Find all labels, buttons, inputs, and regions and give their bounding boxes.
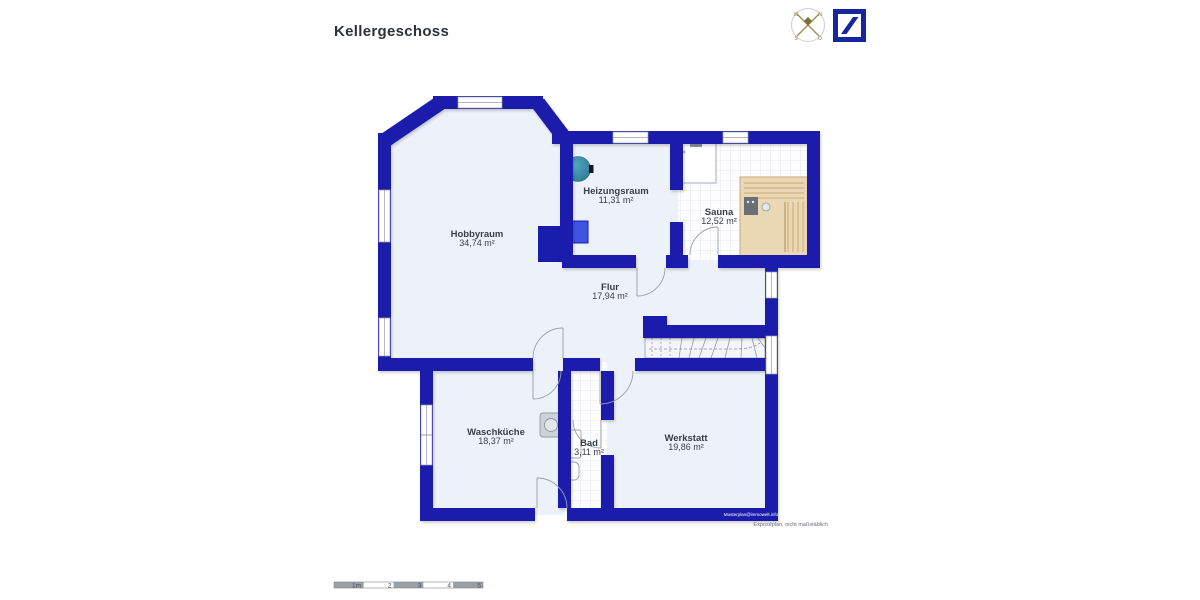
sauna-cabin bbox=[740, 177, 808, 256]
plan-watermark: Musterplan@immowelt.info bbox=[724, 512, 779, 517]
scale-label-3: 3 bbox=[418, 583, 422, 590]
room-area-sauna: 12,52 m² bbox=[701, 216, 737, 226]
room-area-bad: 3,11 m² bbox=[574, 447, 604, 457]
sauna-heater bbox=[744, 197, 758, 215]
scale-disclaimer: Exposéplan, nicht maßstäblich bbox=[753, 522, 828, 528]
stairs bbox=[645, 338, 765, 358]
scale-label-5: 5 bbox=[477, 583, 481, 590]
scale-label-2: 2 bbox=[388, 583, 392, 590]
room-area-heizungsraum: 11,31 m² bbox=[599, 195, 634, 205]
compass-north: N bbox=[818, 12, 822, 18]
brand-logo bbox=[833, 9, 866, 42]
window bbox=[766, 336, 777, 374]
window bbox=[723, 132, 748, 143]
window bbox=[421, 405, 432, 465]
room-area-hobbyraum: 34,74 m² bbox=[459, 238, 495, 248]
tank-valve bbox=[589, 165, 594, 173]
scale-bar: 1m 2 3 4 5 bbox=[334, 582, 483, 590]
compass-east: O bbox=[818, 36, 822, 42]
room-area-flur: 17,94 m² bbox=[592, 291, 628, 301]
compass-west: W bbox=[794, 12, 799, 18]
window bbox=[766, 272, 777, 298]
window bbox=[613, 132, 648, 143]
scale-label-4: 4 bbox=[447, 583, 451, 590]
floorplan-page: Kellergeschoss bbox=[0, 0, 1200, 600]
window bbox=[379, 318, 390, 356]
compass-icon: W N S O bbox=[792, 9, 825, 43]
floorplan-drawing: Hobbyraum 34,74 m² Heizungsraum 11,31 m²… bbox=[0, 0, 1200, 600]
window bbox=[379, 190, 390, 242]
window bbox=[458, 97, 502, 108]
room-area-werkstatt: 19,86 m² bbox=[668, 442, 704, 452]
room-area-waschkueche: 18,37 m² bbox=[478, 436, 514, 446]
scale-label-1m: 1m bbox=[352, 583, 361, 590]
sauna-light bbox=[762, 203, 770, 211]
